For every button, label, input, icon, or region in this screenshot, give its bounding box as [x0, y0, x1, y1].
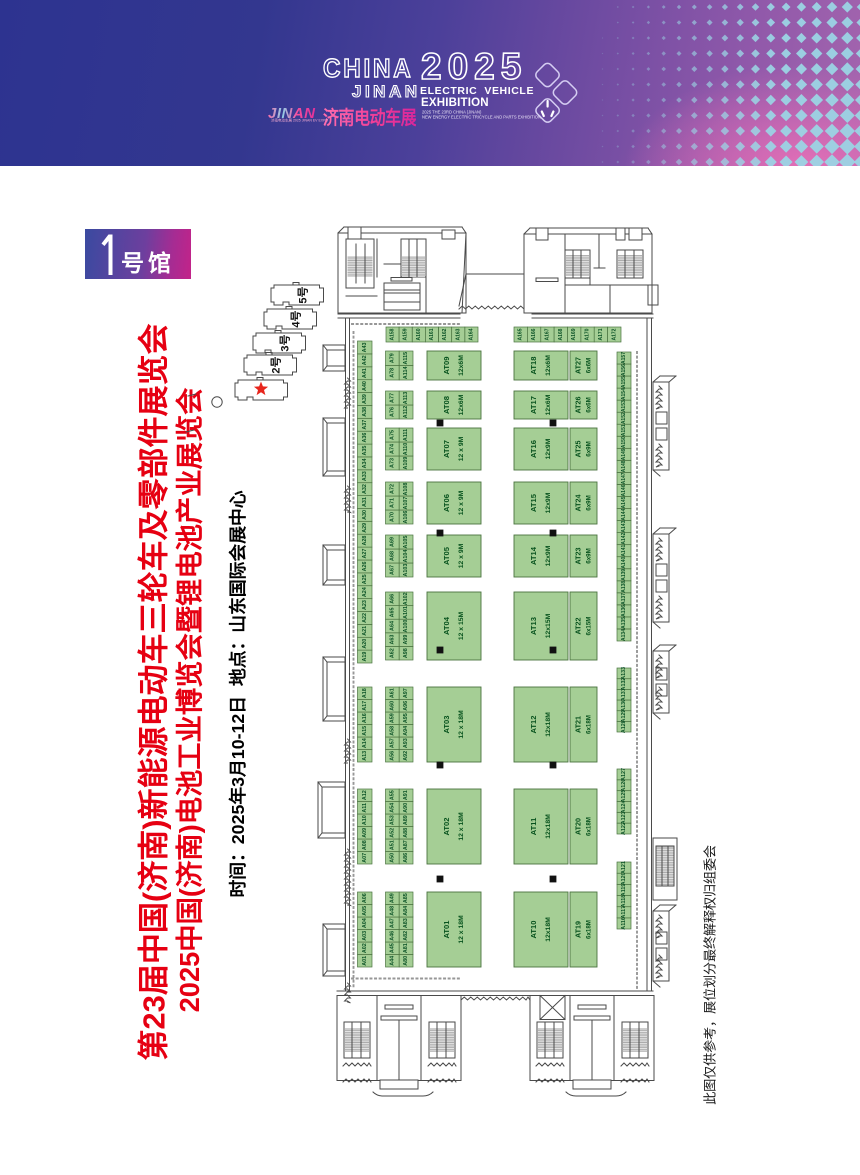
svg-text:A145: A145	[621, 496, 627, 508]
svg-text:A154: A154	[621, 388, 627, 400]
svg-text:A167: A167	[544, 328, 550, 340]
svg-text:AT14: AT14	[529, 546, 538, 565]
svg-text:A74: A74	[389, 444, 395, 454]
svg-text:A34: A34	[362, 458, 368, 468]
svg-text:A49: A49	[389, 893, 395, 903]
svg-text:A94: A94	[403, 726, 409, 736]
svg-text:AT01: AT01	[442, 920, 451, 939]
svg-text:A150: A150	[621, 436, 627, 448]
svg-text:A43: A43	[362, 342, 368, 352]
svg-text:12x9M: 12x9M	[545, 492, 552, 513]
svg-text:A06: A06	[362, 893, 368, 903]
svg-text:A99: A99	[403, 635, 409, 645]
svg-text:A19: A19	[362, 652, 368, 662]
svg-text:A07: A07	[362, 853, 368, 863]
svg-text:A137: A137	[621, 593, 627, 605]
svg-text:AT09: AT09	[442, 356, 451, 374]
svg-text:A12: A12	[362, 790, 368, 800]
svg-text:A77: A77	[389, 393, 395, 403]
svg-text:A31: A31	[362, 497, 368, 507]
svg-text:A88: A88	[403, 828, 409, 838]
svg-text:A162: A162	[442, 328, 448, 340]
svg-text:A72: A72	[389, 484, 395, 494]
svg-text:A111: A111	[403, 429, 409, 441]
svg-text:A16: A16	[362, 713, 368, 723]
svg-text:6x18M: 6x18M	[586, 817, 593, 836]
svg-text:A41: A41	[362, 368, 368, 378]
svg-text:A22: A22	[362, 613, 368, 623]
svg-text:AT02: AT02	[442, 817, 451, 835]
svg-text:A25: A25	[362, 574, 368, 584]
svg-text:A20: A20	[362, 639, 368, 649]
svg-text:A87: A87	[403, 840, 409, 850]
svg-text:4号: 4号	[290, 310, 303, 327]
svg-text:A33: A33	[362, 471, 368, 481]
svg-text:A42: A42	[362, 355, 368, 365]
svg-text:A133: A133	[621, 667, 627, 680]
svg-text:A84: A84	[403, 906, 409, 916]
svg-text:A44: A44	[389, 956, 395, 966]
svg-text:A109: A109	[403, 457, 409, 470]
svg-text:A160: A160	[416, 328, 422, 340]
svg-text:A161: A161	[429, 328, 435, 340]
svg-text:A95: A95	[403, 713, 409, 723]
svg-text:A166: A166	[531, 328, 537, 340]
svg-text:A75: A75	[389, 430, 395, 440]
svg-text:12x6M: 12x6M	[458, 355, 465, 376]
svg-text:A15: A15	[362, 726, 368, 736]
svg-text:A03: A03	[362, 931, 368, 941]
svg-text:A163: A163	[455, 328, 461, 340]
svg-text:A65: A65	[389, 607, 395, 617]
svg-text:A91: A91	[403, 790, 409, 800]
svg-text:A157: A157	[621, 352, 627, 364]
svg-text:A14: A14	[362, 738, 368, 748]
svg-text:A170: A170	[585, 328, 591, 340]
svg-text:A149: A149	[621, 448, 627, 460]
svg-text:A23: A23	[362, 600, 368, 610]
svg-text:A62: A62	[389, 648, 395, 658]
svg-text:AT03: AT03	[442, 715, 451, 733]
svg-text:AT11: AT11	[529, 817, 538, 835]
svg-text:AT21: AT21	[574, 716, 583, 733]
svg-text:A58: A58	[389, 726, 395, 736]
svg-text:A105: A105	[403, 536, 409, 549]
svg-text:A101: A101	[403, 606, 409, 619]
svg-text:A71: A71	[389, 498, 395, 508]
svg-text:A147: A147	[621, 472, 627, 484]
svg-text:A13: A13	[362, 751, 368, 761]
svg-text:A156: A156	[621, 364, 627, 376]
svg-text:AT10: AT10	[529, 920, 538, 938]
svg-text:A110: A110	[403, 443, 409, 456]
svg-text:12 x 9M: 12 x 9M	[458, 490, 465, 515]
svg-text:A158: A158	[390, 328, 396, 340]
svg-text:A164: A164	[468, 328, 474, 340]
svg-text:A135: A135	[621, 617, 627, 629]
svg-text:A155: A155	[621, 376, 627, 388]
svg-text:12x15M: 12x15M	[545, 613, 552, 638]
svg-text:AT20: AT20	[574, 818, 583, 835]
svg-text:6x9M: 6x9M	[586, 495, 593, 510]
svg-text:A78: A78	[389, 368, 395, 378]
svg-text:A46: A46	[389, 931, 395, 941]
svg-text:A70: A70	[389, 512, 395, 522]
svg-text:A54: A54	[389, 803, 395, 813]
svg-text:6x9M: 6x9M	[586, 441, 593, 456]
svg-text:AT06: AT06	[442, 494, 451, 512]
svg-text:A27: A27	[362, 549, 368, 559]
svg-text:12x6M: 12x6M	[545, 394, 552, 415]
svg-text:AT23: AT23	[574, 547, 583, 564]
svg-text:A138: A138	[621, 581, 627, 593]
svg-text:A98: A98	[403, 648, 409, 658]
svg-text:AT19: AT19	[574, 921, 583, 938]
svg-text:AT25: AT25	[574, 440, 583, 457]
svg-text:A63: A63	[389, 635, 395, 645]
svg-text:A89: A89	[403, 815, 409, 825]
svg-text:A152: A152	[621, 412, 627, 424]
svg-text:A53: A53	[389, 815, 395, 825]
svg-text:A39: A39	[362, 394, 368, 404]
svg-text:12 x 15M: 12 x 15M	[458, 611, 465, 640]
svg-text:A144: A144	[621, 508, 627, 520]
svg-text:A05: A05	[362, 906, 368, 916]
svg-text:A26: A26	[362, 561, 368, 571]
svg-text:A115: A115	[403, 352, 409, 365]
svg-text:AT15: AT15	[529, 493, 538, 512]
svg-text:A108: A108	[403, 483, 409, 496]
svg-text:AT05: AT05	[442, 546, 451, 565]
svg-text:A104: A104	[403, 550, 409, 563]
svg-text:AT26: AT26	[574, 396, 583, 413]
svg-text:A64: A64	[389, 621, 395, 631]
svg-text:A134: A134	[621, 629, 627, 641]
svg-text:A02: A02	[362, 943, 368, 953]
svg-text:A01: A01	[362, 956, 368, 966]
svg-text:A86: A86	[403, 853, 409, 863]
svg-text:A51: A51	[389, 840, 395, 850]
svg-text:A85: A85	[403, 893, 409, 903]
svg-text:12 x 18M: 12 x 18M	[458, 915, 465, 944]
svg-text:A47: A47	[389, 918, 395, 928]
svg-text:12x6M: 12x6M	[458, 394, 465, 415]
svg-text:A90: A90	[403, 803, 409, 813]
svg-text:A17: A17	[362, 701, 368, 711]
svg-text:AT16: AT16	[529, 440, 538, 458]
svg-text:A83: A83	[403, 918, 409, 928]
svg-text:A45: A45	[389, 943, 395, 953]
svg-text:AT24: AT24	[574, 494, 583, 511]
svg-text:A30: A30	[362, 510, 368, 520]
svg-text:A10: A10	[362, 815, 368, 825]
svg-text:AT22: AT22	[574, 617, 583, 634]
svg-text:A127: A127	[621, 768, 627, 781]
svg-text:A102: A102	[403, 592, 409, 605]
svg-text:AT08: AT08	[442, 396, 451, 414]
svg-text:A93: A93	[403, 738, 409, 748]
svg-text:A168: A168	[558, 328, 564, 340]
svg-text:A79: A79	[389, 353, 395, 363]
svg-text:A107: A107	[403, 497, 409, 510]
svg-text:12x18M: 12x18M	[545, 917, 552, 942]
svg-text:A82: A82	[403, 931, 409, 941]
svg-text:A112: A112	[403, 406, 409, 419]
svg-text:A114: A114	[403, 367, 409, 380]
svg-text:12x6M: 12x6M	[545, 355, 552, 376]
svg-text:A113: A113	[403, 392, 409, 405]
svg-text:A151: A151	[621, 424, 627, 436]
svg-text:A103: A103	[403, 564, 409, 577]
svg-text:12 x 18M: 12 x 18M	[458, 812, 465, 841]
svg-text:12x9M: 12x9M	[545, 545, 552, 566]
svg-text:A28: A28	[362, 536, 368, 546]
svg-text:A69: A69	[389, 537, 395, 547]
svg-text:A80: A80	[403, 956, 409, 966]
svg-text:A81: A81	[403, 943, 409, 953]
svg-text:A59: A59	[389, 713, 395, 723]
svg-text:12 x 9M: 12 x 9M	[458, 543, 465, 568]
svg-text:A61: A61	[389, 688, 395, 698]
svg-text:A11: A11	[362, 803, 368, 813]
svg-text:A24: A24	[362, 587, 368, 597]
svg-text:A148: A148	[621, 460, 627, 472]
svg-text:A48: A48	[389, 906, 395, 916]
svg-text:A97: A97	[403, 688, 409, 698]
svg-text:A165: A165	[518, 328, 524, 340]
svg-text:A68: A68	[389, 551, 395, 561]
svg-text:A37: A37	[362, 420, 368, 430]
svg-text:A36: A36	[362, 433, 368, 443]
svg-text:A57: A57	[389, 738, 395, 748]
svg-text:A96: A96	[403, 701, 409, 711]
svg-text:12 x 9M: 12 x 9M	[458, 436, 465, 461]
svg-text:A159: A159	[403, 328, 409, 340]
svg-text:A139: A139	[621, 569, 627, 581]
svg-text:A52: A52	[389, 828, 395, 838]
svg-text:12x18M: 12x18M	[545, 712, 552, 737]
svg-text:AT13: AT13	[529, 617, 538, 635]
svg-text:3号: 3号	[279, 334, 292, 351]
svg-text:A142: A142	[621, 532, 627, 544]
svg-text:6x6M: 6x6M	[586, 397, 593, 412]
svg-text:A172: A172	[611, 328, 617, 340]
svg-text:A50: A50	[389, 853, 395, 863]
svg-text:AT27: AT27	[574, 357, 583, 374]
svg-text:A18: A18	[362, 688, 368, 698]
svg-text:A146: A146	[621, 484, 627, 496]
svg-text:A35: A35	[362, 446, 368, 456]
svg-text:A121: A121	[621, 861, 627, 874]
svg-text:A141: A141	[621, 545, 627, 557]
svg-text:A04: A04	[362, 918, 368, 928]
svg-text:A136: A136	[621, 605, 627, 617]
svg-text:5号: 5号	[297, 286, 310, 303]
svg-text:A140: A140	[621, 557, 627, 569]
svg-text:A67: A67	[389, 565, 395, 575]
svg-text:A66: A66	[389, 594, 395, 604]
svg-text:6x6M: 6x6M	[586, 358, 593, 373]
svg-text:6x18M: 6x18M	[586, 920, 593, 939]
svg-text:AT07: AT07	[442, 440, 451, 458]
svg-text:A40: A40	[362, 381, 368, 391]
svg-text:12x9M: 12x9M	[545, 438, 552, 459]
svg-text:6x15M: 6x15M	[586, 617, 593, 636]
svg-text:6x18M: 6x18M	[586, 715, 593, 734]
svg-text:AT12: AT12	[529, 715, 538, 733]
svg-text:A106: A106	[403, 511, 409, 524]
svg-text:2号: 2号	[270, 356, 283, 373]
svg-text:A171: A171	[598, 328, 604, 340]
svg-text:A153: A153	[621, 400, 627, 412]
svg-text:A29: A29	[362, 523, 368, 533]
svg-text:12 x 18M: 12 x 18M	[458, 710, 465, 739]
svg-text:A21: A21	[362, 626, 368, 636]
svg-text:AT18: AT18	[529, 356, 538, 374]
svg-text:A169: A169	[571, 328, 577, 340]
svg-text:A38: A38	[362, 407, 368, 417]
svg-text:6x9M: 6x9M	[586, 548, 593, 563]
svg-text:A76: A76	[389, 407, 395, 417]
svg-text:A32: A32	[362, 484, 368, 494]
svg-text:A143: A143	[621, 520, 627, 532]
svg-text:A100: A100	[403, 620, 409, 633]
svg-text:A73: A73	[389, 458, 395, 468]
svg-text:A60: A60	[389, 701, 395, 711]
svg-text:A08: A08	[362, 840, 368, 850]
svg-text:12x18M: 12x18M	[545, 814, 552, 839]
svg-text:AT04: AT04	[442, 616, 451, 635]
svg-text:A92: A92	[403, 751, 409, 761]
svg-text:A09: A09	[362, 828, 368, 838]
svg-text:A56: A56	[389, 751, 395, 761]
svg-text:AT17: AT17	[529, 396, 538, 414]
svg-text:A55: A55	[389, 790, 395, 800]
